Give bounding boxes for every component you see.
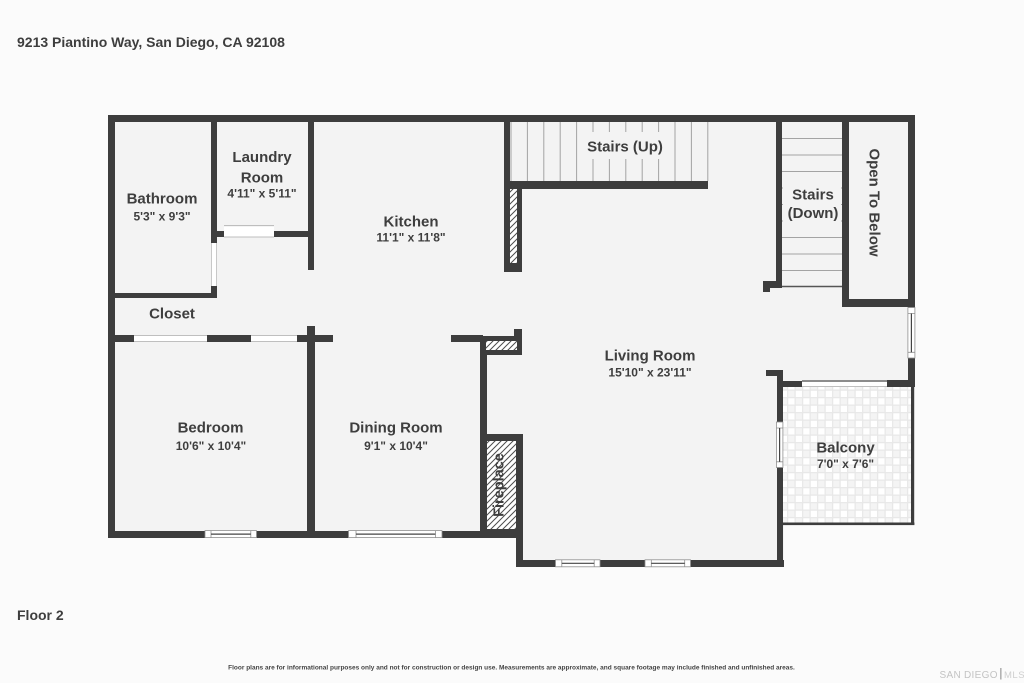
svg-text:Stairs: Stairs xyxy=(792,186,834,203)
svg-text:Floor plans are for informatio: Floor plans are for informational purpos… xyxy=(228,665,795,672)
svg-text:Closet: Closet xyxy=(149,305,195,322)
svg-text:Balcony: Balcony xyxy=(816,439,875,456)
svg-text:Dining Room: Dining Room xyxy=(349,419,442,436)
svg-text:Floor 2: Floor 2 xyxy=(17,607,64,623)
svg-text:Fireplace: Fireplace xyxy=(492,453,508,517)
svg-text:Living Room: Living Room xyxy=(605,347,696,364)
svg-text:5'3" x 9'3": 5'3" x 9'3" xyxy=(133,209,190,223)
svg-text:10'6" x 10'4": 10'6" x 10'4" xyxy=(176,439,246,453)
svg-text:9'1" x 10'4": 9'1" x 10'4" xyxy=(364,439,428,453)
svg-text:9213 Piantino Way, San Diego,: 9213 Piantino Way, San Diego, CA 92108 xyxy=(17,34,285,50)
svg-text:(Down): (Down) xyxy=(788,205,839,222)
svg-text:Laundry: Laundry xyxy=(232,149,292,166)
svg-text:7'0" x 7'6": 7'0" x 7'6" xyxy=(817,457,874,471)
svg-text:Room: Room xyxy=(241,170,284,187)
svg-text:15'10" x 23'11": 15'10" x 23'11" xyxy=(608,365,691,379)
svg-text:SAN DIEGO: SAN DIEGO xyxy=(940,670,998,681)
svg-text:Open To Below: Open To Below xyxy=(866,148,883,256)
svg-text:4'11" x 5'11": 4'11" x 5'11" xyxy=(227,186,296,200)
svg-text:Bathroom: Bathroom xyxy=(127,190,198,207)
svg-text:Kitchen: Kitchen xyxy=(383,213,438,230)
svg-text:MLS: MLS xyxy=(1004,670,1024,681)
svg-text:11'1" x 11'8": 11'1" x 11'8" xyxy=(376,230,445,244)
svg-text:Bedroom: Bedroom xyxy=(178,419,244,436)
svg-text:Stairs (Up): Stairs (Up) xyxy=(587,138,663,155)
